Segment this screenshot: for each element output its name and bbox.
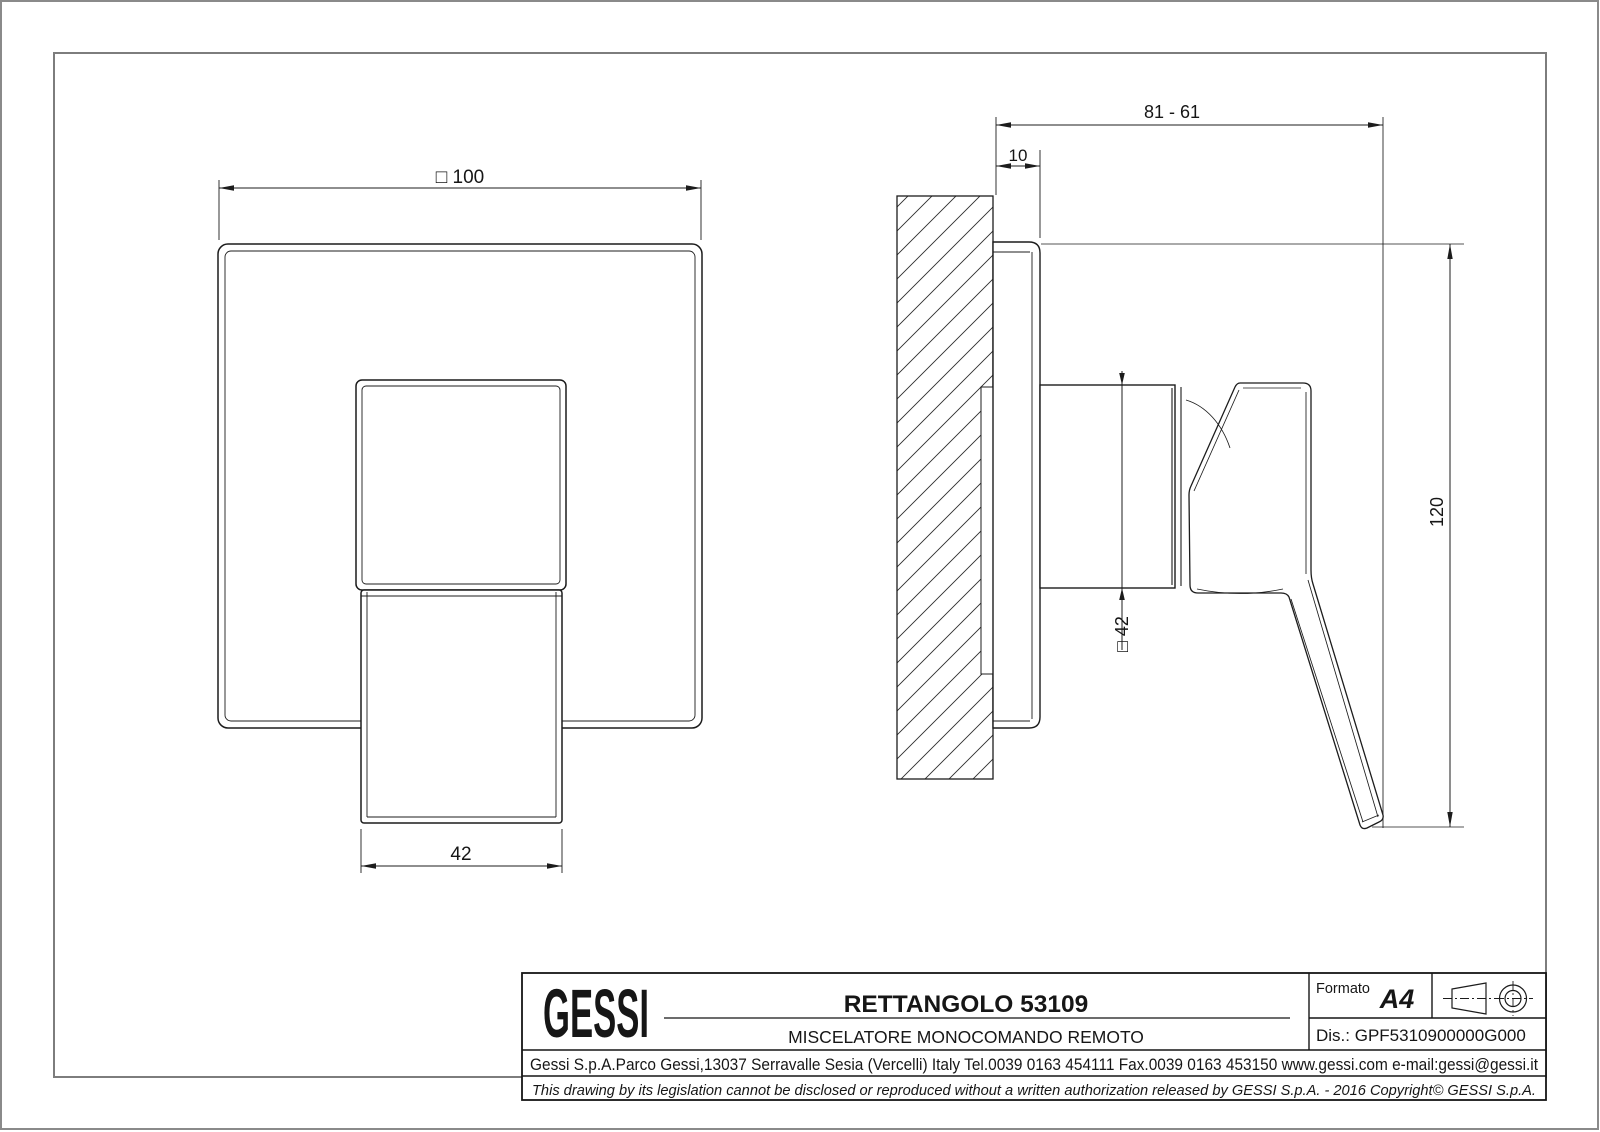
drawing-number: Dis.: GPF5310900000G000 <box>1316 1026 1526 1045</box>
lever-outline <box>361 590 562 823</box>
dim-arrow-up <box>1119 588 1125 600</box>
dim-text-body-square: □ 42 <box>1112 616 1132 652</box>
format-value: A4 <box>1379 984 1415 1014</box>
valve-body <box>1040 385 1175 588</box>
inner-drawing-frame <box>54 53 1546 1077</box>
wall-section <box>897 196 993 779</box>
outer-page-border <box>1 1 1598 1129</box>
product-subtitle: MISCELATORE MONOCOMANDO REMOTO <box>788 1027 1144 1047</box>
dim-text-plate-width: □ 100 <box>436 167 484 188</box>
dim-arrow-down <box>1119 373 1125 385</box>
gessi-logo-text: GESSI <box>543 976 649 1053</box>
dim-text-depth-range: 81 - 61 <box>1144 102 1200 122</box>
recessed-body <box>981 387 994 674</box>
gessi-logo: GESSI <box>543 976 649 1053</box>
page-frame <box>1 1 1598 1129</box>
dim-text-overall-height: 120 <box>1427 497 1447 527</box>
dim-text-lever-width: 42 <box>450 844 471 865</box>
legal-disclaimer: This drawing by its legislation cannot b… <box>532 1082 1536 1099</box>
front-view <box>218 244 702 823</box>
product-title: RETTANGOLO 53109 <box>844 991 1089 1018</box>
technical-drawing: □ 100 42 <box>0 0 1600 1132</box>
handle-base-outline <box>356 380 566 590</box>
dim-text-plate-depth: 10 <box>1009 146 1028 165</box>
format-label: Formato <box>1316 981 1370 997</box>
plate-side-outline <box>993 242 1040 728</box>
handle-base-inner-edge <box>362 386 560 584</box>
drawing-sheet: □ 100 42 <box>0 0 1600 1132</box>
lever-outer-inner <box>1308 580 1378 817</box>
handle-side-outline <box>1189 383 1383 829</box>
side-view <box>897 196 1383 829</box>
company-address: Gessi S.p.A.Parco Gessi,13037 Serravalle… <box>530 1055 1538 1074</box>
